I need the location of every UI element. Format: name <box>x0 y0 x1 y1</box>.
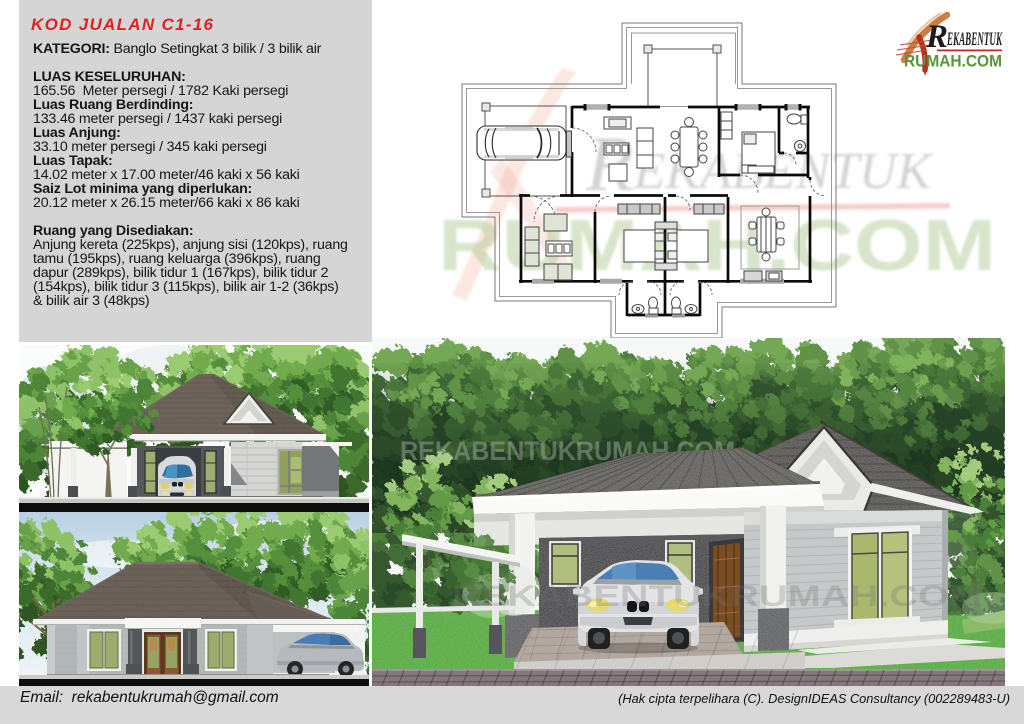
svg-text:RUMAH.COM: RUMAH.COM <box>904 53 1002 71</box>
svg-text:EKABENTUK: EKABENTUK <box>947 30 1003 50</box>
svg-text:REKABENTUKRUMAH.COM: REKABENTUKRUMAH.COM <box>452 580 982 613</box>
